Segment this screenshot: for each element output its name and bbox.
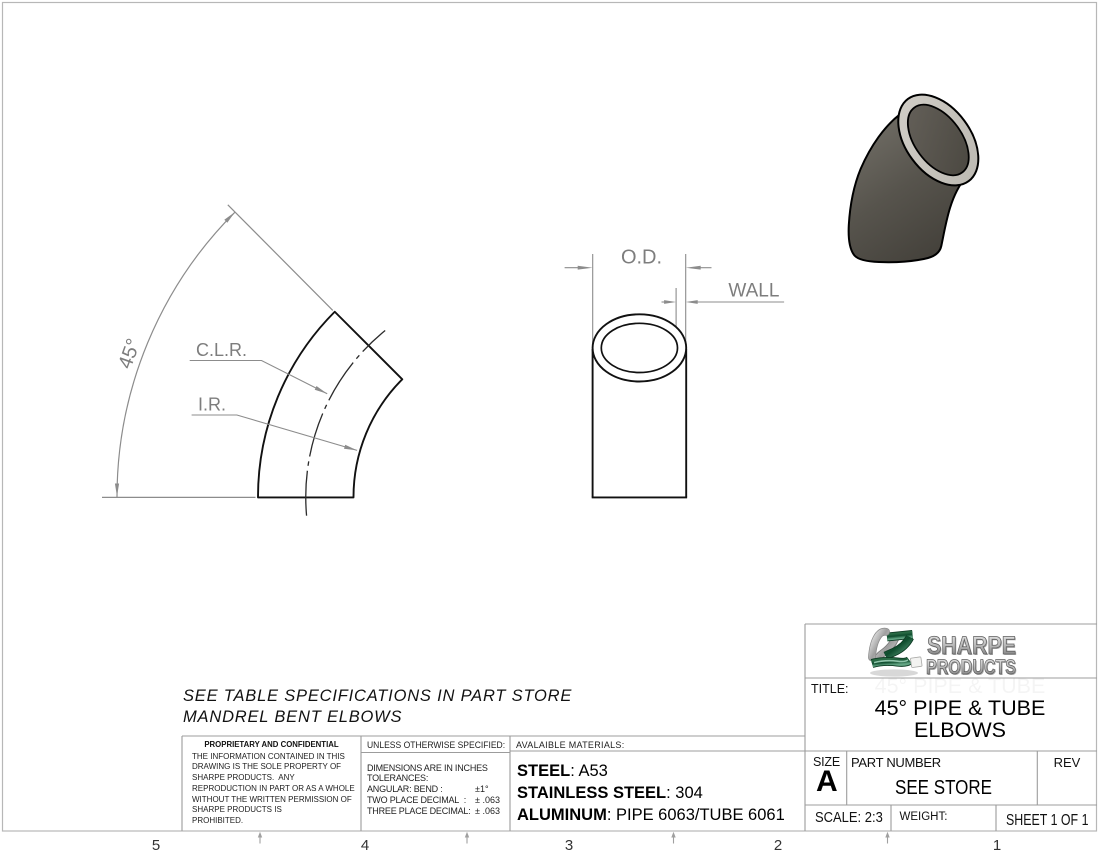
- svg-text:PRODUCTS: PRODUCTS: [926, 656, 1016, 679]
- svg-text:I.R.: I.R.: [198, 395, 226, 415]
- svg-text:45°: 45°: [114, 336, 145, 372]
- svg-text:C.L.R.: C.L.R.: [196, 340, 247, 360]
- svg-text:WALL: WALL: [728, 280, 779, 301]
- svg-text:O.D.: O.D.: [621, 247, 662, 269]
